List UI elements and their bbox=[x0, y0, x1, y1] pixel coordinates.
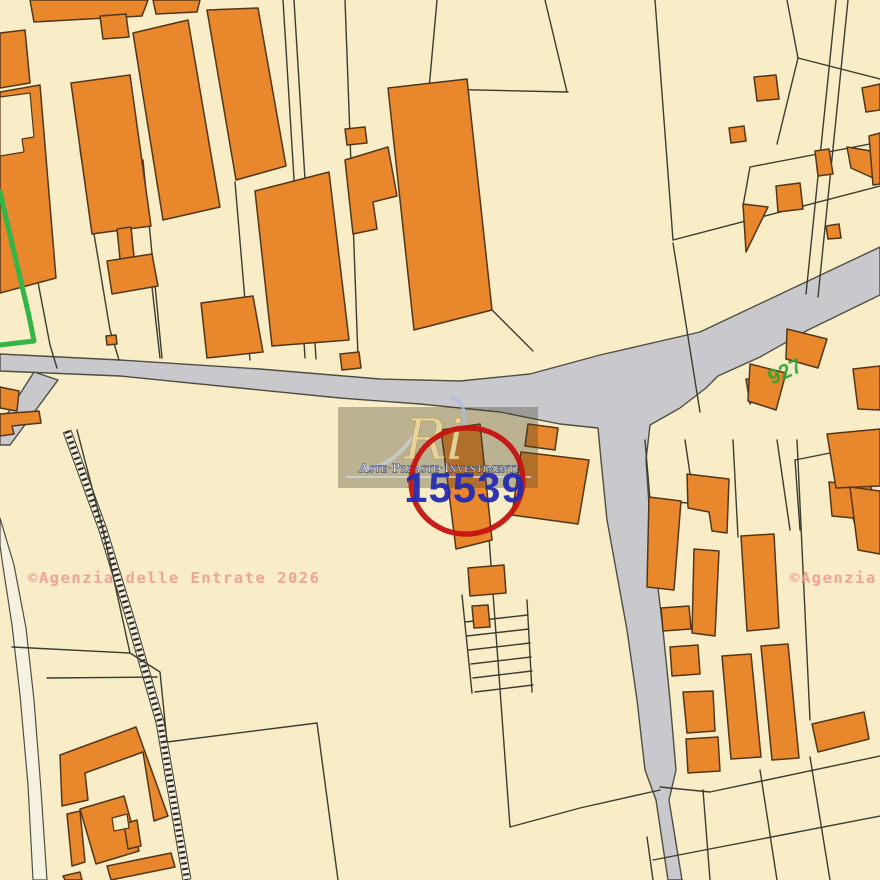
building bbox=[0, 30, 30, 88]
building bbox=[30, 0, 148, 22]
building bbox=[0, 387, 19, 411]
watermark-right: ©Agenzia bbox=[790, 569, 877, 587]
parcel-boundary bbox=[787, 0, 798, 58]
parcel-boundary bbox=[492, 310, 533, 351]
cadastral-map: 927 ©Agenzia delle Entrate 2026 ©Agenzia… bbox=[0, 0, 880, 880]
parcel-boundary bbox=[653, 816, 880, 860]
building bbox=[388, 79, 492, 330]
building bbox=[761, 644, 799, 760]
building bbox=[754, 75, 779, 101]
parcel-boundary bbox=[471, 657, 531, 664]
building bbox=[670, 645, 700, 676]
building bbox=[815, 149, 833, 176]
building bbox=[741, 534, 779, 631]
parcel-boundary bbox=[47, 677, 157, 678]
building bbox=[647, 497, 681, 590]
building bbox=[255, 172, 349, 346]
parcel-boundary bbox=[510, 790, 660, 827]
building bbox=[827, 429, 880, 488]
parcel-boundary bbox=[545, 0, 567, 92]
building bbox=[687, 474, 729, 533]
parcel-boundary bbox=[798, 58, 880, 79]
parcel-boundary bbox=[760, 770, 777, 880]
parcel-boundary bbox=[467, 629, 529, 636]
building bbox=[729, 126, 746, 143]
building bbox=[345, 147, 397, 234]
parcel-boundary bbox=[655, 0, 673, 240]
building bbox=[117, 227, 134, 259]
watermark-left: ©Agenzia delle Entrate 2026 bbox=[28, 569, 320, 587]
building bbox=[63, 872, 82, 880]
building bbox=[692, 549, 719, 636]
building bbox=[743, 204, 768, 252]
building bbox=[468, 565, 506, 596]
parcel-boundary bbox=[317, 723, 338, 880]
parcel-boundary bbox=[462, 595, 472, 693]
parcel-boundary bbox=[703, 790, 710, 880]
parcel-boundary bbox=[743, 167, 750, 206]
building bbox=[107, 254, 158, 294]
parcel-number-label: 15539 bbox=[404, 464, 526, 511]
building bbox=[853, 366, 880, 410]
building bbox=[661, 606, 691, 631]
building bbox=[686, 737, 720, 773]
parcel-boundary bbox=[429, 0, 437, 89]
cadastral-map-screenshot: 927 ©Agenzia delle Entrate 2026 ©Agenzia… bbox=[0, 0, 880, 880]
parcel-boundary bbox=[469, 643, 530, 650]
parcel-boundary bbox=[475, 685, 533, 692]
building bbox=[776, 183, 803, 212]
parcel-boundary bbox=[12, 647, 130, 653]
building bbox=[0, 411, 41, 436]
parcel-boundary bbox=[487, 510, 510, 827]
building bbox=[340, 352, 361, 370]
parcel-boundary bbox=[527, 600, 532, 692]
parcel-boundary bbox=[647, 837, 653, 880]
parcel-boundary bbox=[733, 440, 738, 537]
building bbox=[345, 127, 367, 145]
building bbox=[850, 487, 880, 554]
building bbox=[722, 654, 761, 759]
building bbox=[826, 224, 841, 239]
parcel-boundary bbox=[777, 58, 798, 144]
parcel-boundary bbox=[810, 757, 830, 880]
building bbox=[472, 605, 490, 628]
building bbox=[683, 691, 715, 733]
building bbox=[201, 296, 263, 358]
building bbox=[862, 84, 880, 112]
parcel-boundary bbox=[777, 440, 790, 530]
parcel-boundary bbox=[806, 0, 836, 294]
building bbox=[812, 712, 869, 752]
building bbox=[106, 335, 117, 345]
building bbox=[71, 75, 151, 234]
parcel-boundary bbox=[473, 671, 532, 678]
parcel-boundary bbox=[685, 440, 690, 474]
building bbox=[153, 0, 200, 14]
building bbox=[100, 14, 129, 39]
building bbox=[847, 147, 873, 178]
building bbox=[207, 8, 286, 180]
